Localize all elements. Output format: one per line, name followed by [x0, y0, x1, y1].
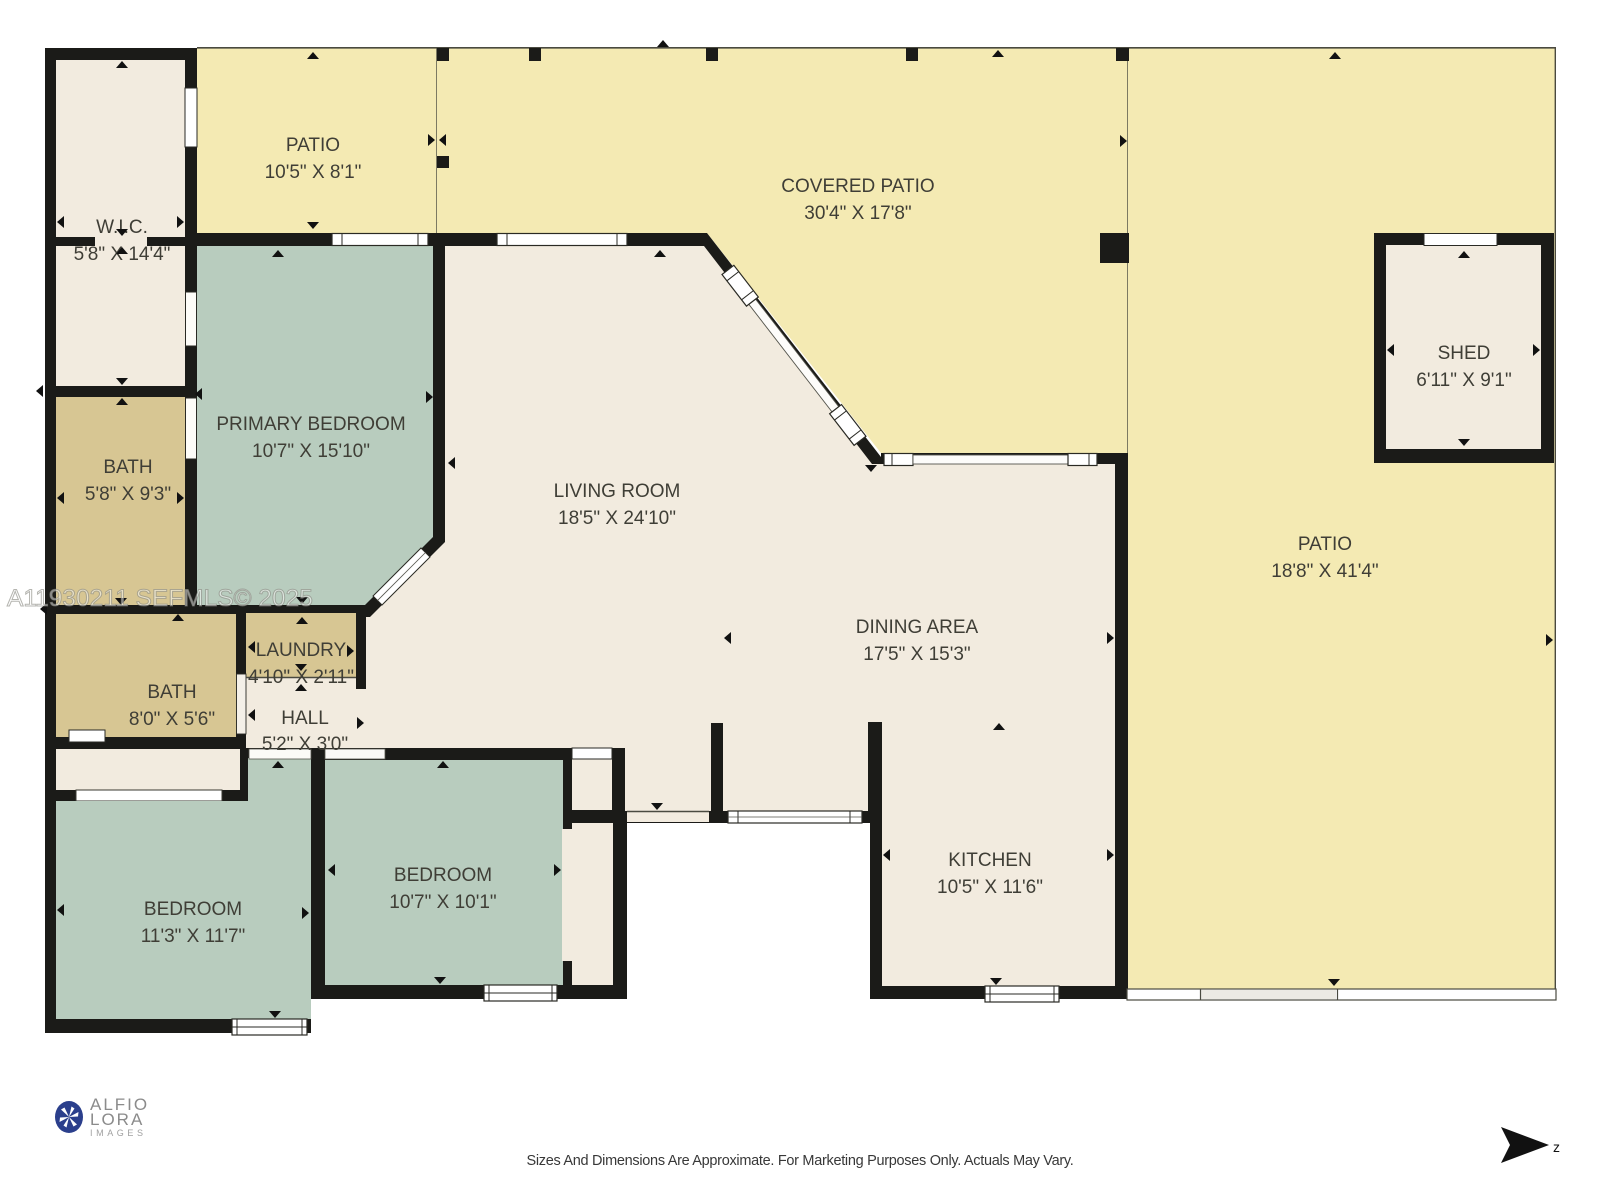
svg-text:PATIO: PATIO: [286, 135, 340, 156]
svg-text:KITCHEN: KITCHEN: [948, 850, 1031, 871]
svg-text:PRIMARY BEDROOM: PRIMARY BEDROOM: [216, 414, 405, 435]
svg-text:10'5" X 11'6": 10'5" X 11'6": [937, 877, 1043, 898]
svg-text:BEDROOM: BEDROOM: [394, 865, 492, 886]
svg-text:LORA: LORA: [90, 1110, 144, 1129]
svg-text:10'7" X 15'10": 10'7" X 15'10": [252, 441, 370, 462]
svg-text:z: z: [1553, 1139, 1560, 1155]
svg-text:PATIO: PATIO: [1298, 534, 1352, 555]
svg-text:BEDROOM: BEDROOM: [144, 899, 242, 920]
svg-text:8'0" X 5'6": 8'0" X 5'6": [129, 709, 215, 730]
svg-text:18'5" X 24'10": 18'5" X 24'10": [558, 508, 676, 529]
svg-text:A11930211 SEFMLS© 2025: A11930211 SEFMLS© 2025: [7, 585, 313, 612]
svg-text:HALL: HALL: [281, 708, 329, 729]
svg-text:10'5" X 8'1": 10'5" X 8'1": [265, 162, 362, 183]
svg-text:BATH: BATH: [103, 457, 152, 478]
svg-text:LIVING ROOM: LIVING ROOM: [554, 481, 681, 502]
svg-text:Sizes And Dimensions Are Appro: Sizes And Dimensions Are Approximate. Fo…: [527, 1153, 1074, 1169]
svg-text:30'4" X 17'8": 30'4" X 17'8": [804, 203, 911, 224]
svg-text:5'8" X 9'3": 5'8" X 9'3": [85, 484, 171, 505]
svg-text:IMAGES: IMAGES: [90, 1128, 147, 1138]
svg-text:18'8" X 41'4": 18'8" X 41'4": [1271, 561, 1378, 582]
svg-text:SHED: SHED: [1438, 343, 1491, 364]
svg-text:11'3" X 11'7": 11'3" X 11'7": [141, 926, 246, 947]
svg-text:DINING AREA: DINING AREA: [856, 617, 979, 638]
svg-text:BATH: BATH: [147, 682, 196, 703]
svg-text:COVERED PATIO: COVERED PATIO: [781, 176, 934, 197]
svg-text:5'2" X 3'0": 5'2" X 3'0": [262, 734, 348, 755]
svg-text:17'5" X 15'3": 17'5" X 15'3": [863, 644, 970, 665]
svg-text:LAUNDRY: LAUNDRY: [256, 640, 347, 661]
svg-text:10'7" X 10'1": 10'7" X 10'1": [389, 892, 496, 913]
svg-text:6'11" X 9'1": 6'11" X 9'1": [1416, 370, 1511, 391]
